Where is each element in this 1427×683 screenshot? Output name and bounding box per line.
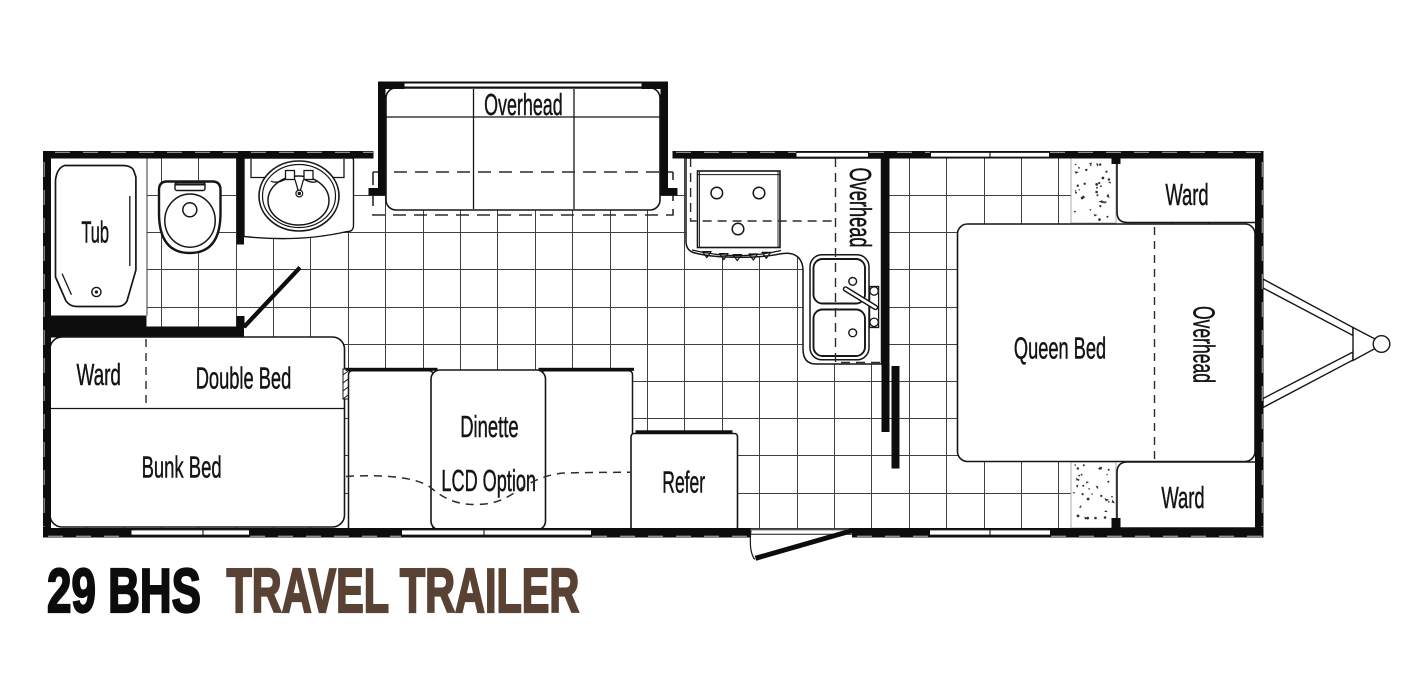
svg-text:Refer: Refer (662, 465, 705, 499)
svg-text:LCD Option: LCD Option (441, 464, 536, 498)
svg-text:Bunk Bed: Bunk Bed (142, 451, 222, 485)
svg-text:Double Bed: Double Bed (196, 362, 292, 396)
svg-text:Overhead: Overhead (1186, 306, 1220, 383)
svg-text:Ward: Ward (1165, 178, 1208, 212)
svg-text:Overhead: Overhead (484, 88, 563, 122)
svg-text:Ward: Ward (76, 358, 120, 392)
svg-text:TRAVEL TRAILER: TRAVEL TRAILER (227, 557, 580, 626)
svg-text:Queen Bed: Queen Bed (1014, 332, 1106, 366)
svg-text:Overhead: Overhead (843, 168, 877, 248)
svg-text:29 BHS: 29 BHS (47, 557, 201, 626)
svg-text:Tub: Tub (81, 216, 109, 250)
svg-text:Dinette: Dinette (460, 410, 518, 444)
svg-text:Ward: Ward (1161, 481, 1204, 515)
